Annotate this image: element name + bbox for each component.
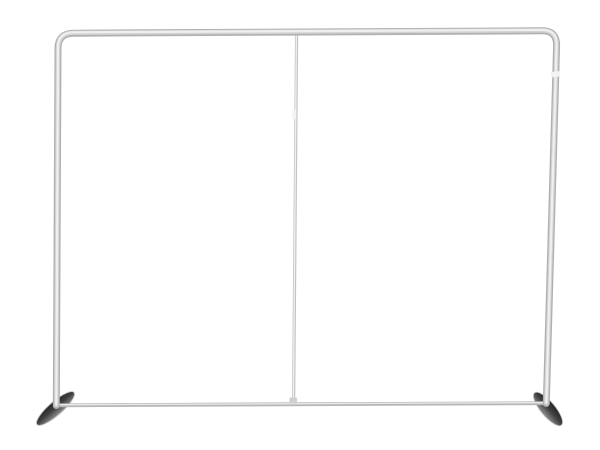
backdrop-frame-illustration xyxy=(0,0,600,450)
outer-frame-tube-base xyxy=(56,31,556,406)
right-upright-joint xyxy=(551,71,561,77)
outer-frame-tube-highlight xyxy=(56,30,556,405)
center-pole-joint xyxy=(292,110,296,119)
outer-frame-tube-mid xyxy=(56,30,556,405)
center-pole xyxy=(290,34,298,404)
product-photo xyxy=(0,0,600,450)
bottom-bar xyxy=(57,403,547,406)
center-pole-bottom-fitting xyxy=(290,398,298,404)
outer-frame-tube xyxy=(56,30,560,406)
